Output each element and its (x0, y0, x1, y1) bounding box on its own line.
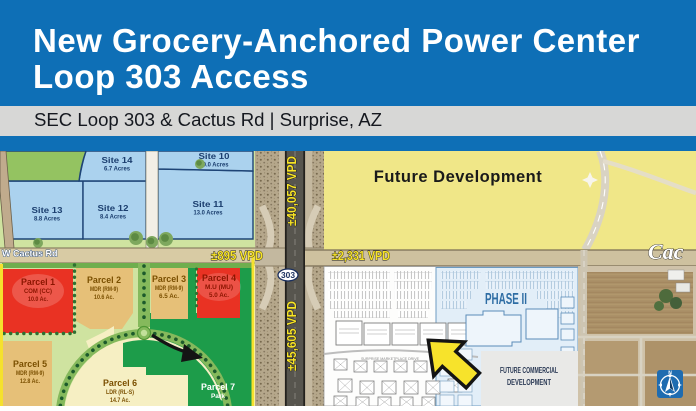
svg-text:±895 VPD: ±895 VPD (211, 249, 263, 263)
svg-text:Parcel 1: Parcel 1 (21, 277, 55, 287)
svg-text:Parcel 7: Parcel 7 (201, 382, 235, 392)
svg-text:Parcel 4: Parcel 4 (202, 273, 237, 283)
svg-text:±45,605 VPD: ±45,605 VPD (285, 301, 299, 371)
svg-text:5.0 Ac.: 5.0 Ac. (209, 292, 229, 299)
svg-text:13.0 Acres: 13.0 Acres (194, 211, 224, 217)
svg-text:Site 11: Site 11 (193, 199, 224, 209)
svg-text:10.6 Ac.: 10.6 Ac. (94, 294, 114, 301)
svg-text:303: 303 (281, 270, 295, 280)
svg-text:MDR (RM-9): MDR (RM-9) (155, 285, 183, 292)
svg-text:Parcel 3: Parcel 3 (152, 274, 186, 284)
svg-text:8.4 Acres: 8.4 Acres (100, 215, 127, 221)
svg-text:SURPRISE MARKETPLACE DRIVE: SURPRISE MARKETPLACE DRIVE (361, 357, 420, 361)
svg-text:±40,057 VPD: ±40,057 VPD (285, 156, 299, 226)
svg-text:6.7 Acres: 6.7 Acres (104, 167, 131, 173)
svg-text:FUTURE COMMERCIAL: FUTURE COMMERCIAL (500, 366, 558, 375)
svg-text:DEVELOPMENT: DEVELOPMENT (507, 378, 551, 387)
svg-text:6.5 Ac.: 6.5 Ac. (159, 293, 179, 300)
svg-text:Site 12: Site 12 (98, 203, 129, 213)
svg-text:M.U (MU): M.U (MU) (205, 284, 233, 291)
svg-text:Park: Park (211, 393, 225, 400)
svg-text:Parcel 6: Parcel 6 (103, 378, 137, 388)
svg-text:Site 13: Site 13 (32, 205, 63, 215)
svg-text:Site 14: Site 14 (102, 155, 133, 165)
svg-text:MDR (RM-9): MDR (RM-9) (90, 286, 118, 293)
svg-text:MDR (RM-9): MDR (RM-9) (16, 370, 44, 377)
svg-text:W Cactus Rd: W Cactus Rd (2, 249, 58, 259)
svg-text:10.0 Ac.: 10.0 Ac. (28, 296, 48, 303)
svg-text:PHASE II: PHASE II (485, 291, 527, 308)
svg-text:LDR (RL-S): LDR (RL-S) (106, 389, 134, 396)
svg-text:14.7 Ac.: 14.7 Ac. (110, 397, 130, 404)
svg-text:Parcel 2: Parcel 2 (87, 275, 121, 285)
svg-text:Site 10: Site 10 (199, 151, 230, 161)
svg-text:12.8 Ac.: 12.8 Ac. (20, 378, 40, 385)
svg-text:Future Development: Future Development (374, 168, 543, 186)
svg-text:N: N (668, 371, 672, 377)
svg-text:Cac: Cac (648, 239, 684, 264)
svg-text:COM (CC): COM (CC) (24, 288, 52, 295)
svg-text:8.8 Acres: 8.8 Acres (34, 217, 61, 223)
svg-text:Parcel 5: Parcel 5 (13, 359, 47, 369)
svg-text:±2,331 VPD: ±2,331 VPD (332, 249, 390, 263)
